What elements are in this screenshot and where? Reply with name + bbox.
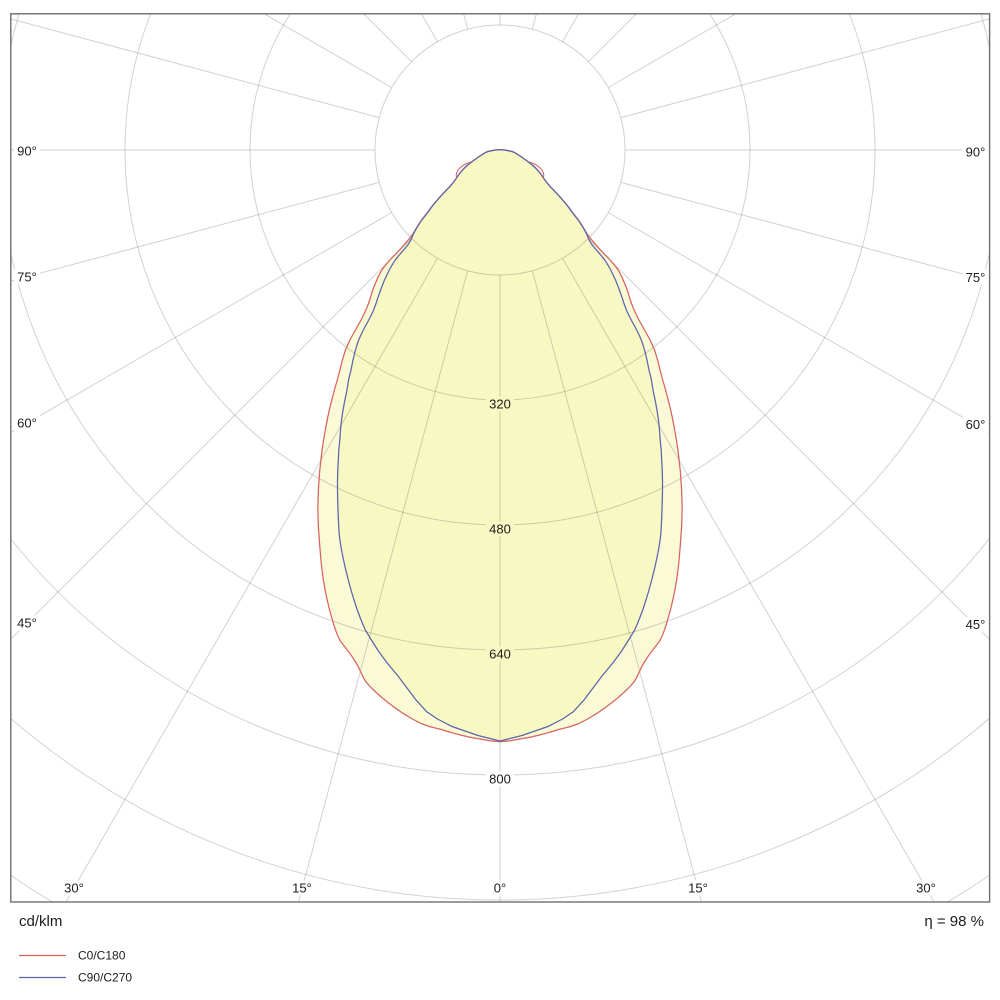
svg-text:45°: 45° [966, 617, 986, 632]
svg-text:η = 98 %: η = 98 % [924, 913, 984, 930]
svg-text:15°: 15° [292, 881, 312, 896]
svg-text:75°: 75° [966, 270, 986, 285]
svg-text:15°: 15° [688, 881, 708, 896]
svg-text:480: 480 [489, 522, 511, 537]
svg-text:320: 320 [489, 397, 511, 412]
svg-text:640: 640 [489, 647, 511, 662]
svg-text:C0/C180: C0/C180 [78, 949, 126, 963]
svg-text:cd/klm: cd/klm [19, 913, 62, 930]
svg-text:75°: 75° [17, 270, 37, 285]
svg-text:C90/C270: C90/C270 [78, 971, 132, 985]
svg-text:60°: 60° [17, 416, 37, 431]
svg-text:60°: 60° [966, 417, 986, 432]
svg-text:45°: 45° [17, 616, 37, 631]
svg-text:30°: 30° [916, 881, 936, 896]
svg-text:90°: 90° [966, 145, 986, 160]
svg-text:90°: 90° [17, 144, 37, 159]
svg-text:800: 800 [489, 772, 511, 787]
svg-text:30°: 30° [64, 881, 84, 896]
svg-text:0°: 0° [494, 881, 506, 896]
